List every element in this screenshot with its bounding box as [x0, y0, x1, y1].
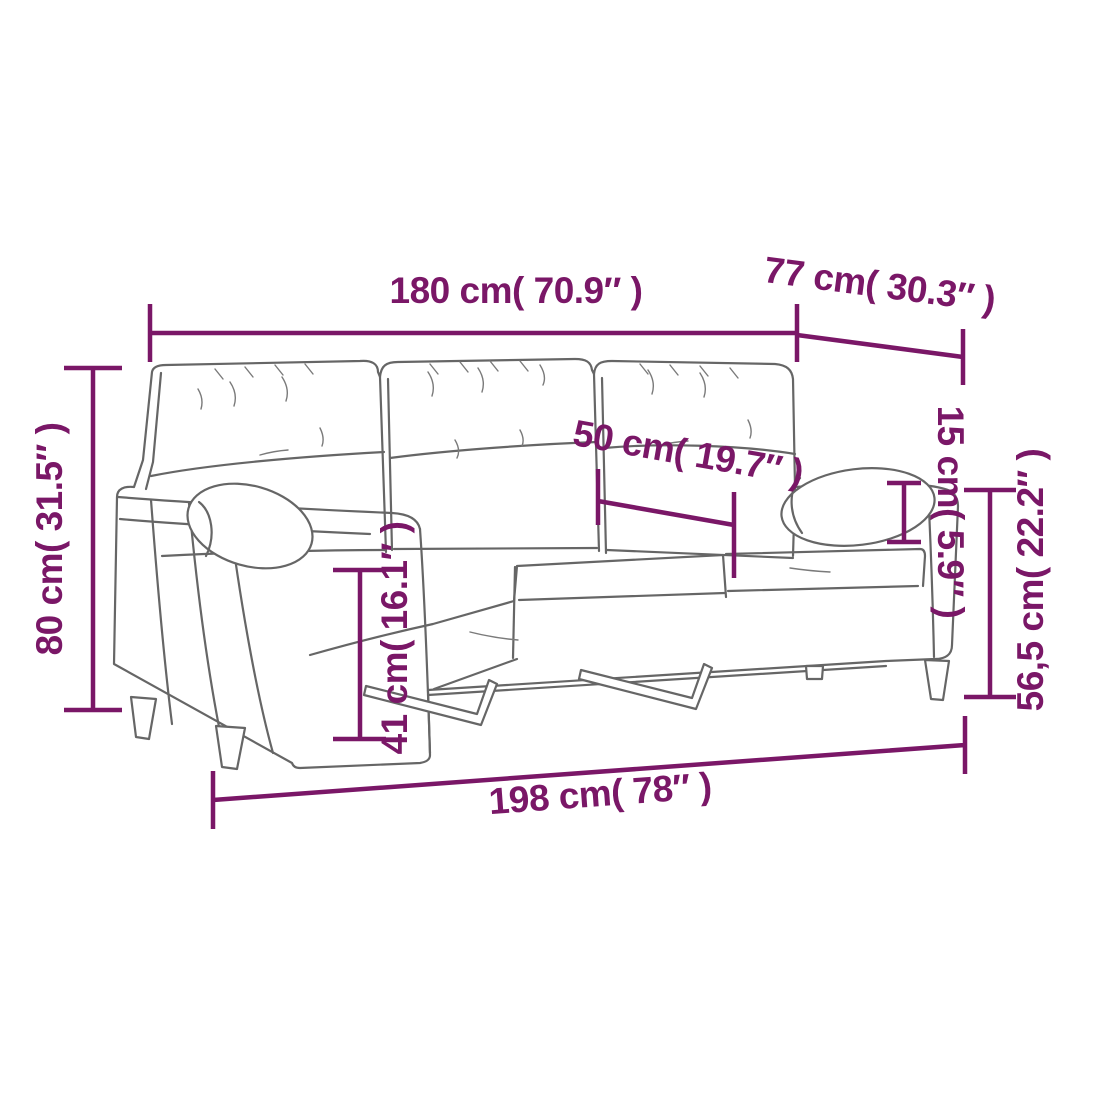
dim-total-width-line	[150, 304, 797, 362]
dim-depth-line	[797, 329, 963, 385]
dim-arm-height-label: 56,5 cm( 22.2″ )	[1010, 449, 1051, 712]
sofa-dimension-drawing: 180 cm( 70.9″ ) 77 cm( 30.3″ ) 80 cm( 31…	[0, 0, 1100, 1100]
dim-bolster-height-label: 15 cm( 5.9″ )	[930, 406, 971, 619]
dim-arm-height: 56,5 cm( 22.2″ )	[964, 449, 1051, 712]
front-leg-left-1	[131, 697, 156, 739]
dimension-diagram: 180 cm( 70.9″ ) 77 cm( 30.3″ ) 80 cm( 31…	[0, 0, 1100, 1100]
dim-back-height: 80 cm( 31.5″ )	[29, 368, 122, 710]
back-block-leg	[806, 666, 823, 679]
front-leg-left-2	[216, 726, 245, 769]
dim-seat-height-label: 41 cm( 16.1″ )	[374, 522, 415, 755]
sofa-sketch	[114, 359, 958, 769]
dim-total-width: 180 cm( 70.9″ )	[150, 270, 797, 362]
dim-back-height-label: 80 cm( 31.5″ )	[29, 423, 70, 656]
dim-total-length-label: 198 cm( 78″ )	[487, 765, 712, 822]
dim-total-width-label: 180 cm( 70.9″ )	[390, 270, 643, 311]
front-leg-right	[925, 660, 949, 700]
